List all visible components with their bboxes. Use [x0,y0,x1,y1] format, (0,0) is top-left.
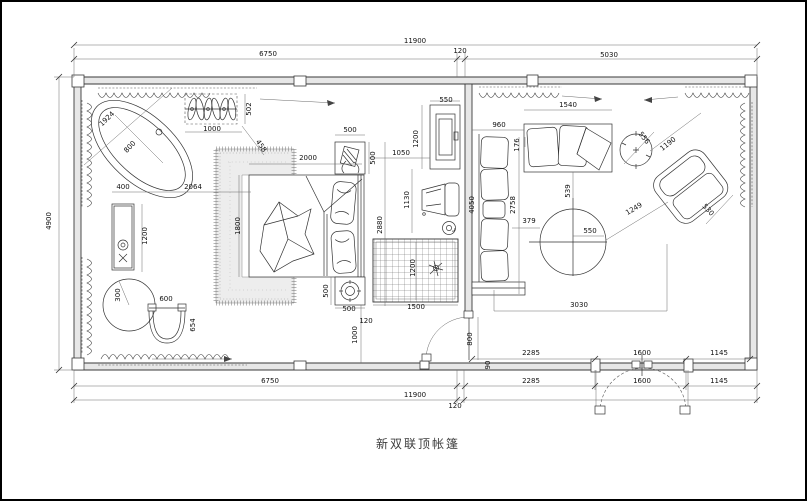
dim-label: 1145 [710,349,728,357]
drawing-title: 新双联顶帐篷 [376,436,460,451]
dim-label: 1050 [392,149,410,157]
nightstand-top [335,142,365,174]
dim-label: 4900 [45,212,53,230]
dim-label: 1200 [409,259,417,277]
dim-label: 1600 [633,377,651,385]
dim-label: 1200 [412,130,420,148]
round-table [529,198,607,276]
dim-label: 6750 [259,50,277,58]
dim-label: 2000 [299,154,317,162]
walls [72,75,757,372]
door-jamb-right [684,359,693,372]
dim-label: 1130 [403,191,411,209]
pillow [331,230,357,274]
dim-label: 550 [583,227,596,235]
dim-label: 176 [513,138,521,152]
dim-label: 1145 [710,377,728,385]
dim-label: 300 [114,288,122,301]
dim-label: 500 [343,126,356,134]
dimension-labels: 11900 6750 120 5030 4900 2285 1600 1145 … [45,37,728,410]
sofa-l-shaped [472,134,525,295]
tub-chair [148,304,186,343]
dim-label: 120 [448,402,461,410]
clothes-rack [185,94,237,124]
dim-label: 2285 [522,349,540,357]
dim-label: 400 [116,183,129,191]
sofa-top [524,124,612,172]
bathtub [74,83,210,216]
dim-label: 2758 [509,196,517,214]
round-side-table-left [103,279,155,331]
dim-label: 550 [439,96,452,104]
dim-label: 11900 [404,391,426,399]
dim-label: 120 [453,47,466,55]
dim-label: 90 [484,361,492,370]
armchair [649,145,733,228]
tv-cabinet [430,105,460,169]
dim-label: 502 [245,102,253,115]
dim-label: 2285 [522,377,540,385]
dim-label: 120 [359,317,372,325]
dim-label: 1000 [203,125,221,133]
dim-label: 3030 [570,301,588,309]
dim-label: 1500 [407,303,425,311]
dim-label: 1249 [624,201,643,217]
dim-label: 600 [159,295,172,303]
dim-label: 11900 [404,37,426,45]
dim-label: 1600 [633,349,651,357]
dim-label: 6750 [261,377,279,385]
dim-label: 500 [369,151,377,164]
dim-label: 539 [564,184,572,197]
floor-plan-sheet: 11900 6750 120 5030 4900 2285 1600 1145 … [0,0,807,501]
door-jamb-left [591,359,600,372]
dim-label: 1190 [659,135,678,152]
dim-label: 1800 [234,217,242,235]
dim-label: 654 [189,318,197,332]
lounge-chair [422,183,459,216]
dim-label: 379 [522,217,535,225]
dim-label: 800 [466,332,474,345]
nightstand-bottom [335,277,365,305]
dim-label: 5030 [600,51,618,59]
dim-label: 960 [492,121,505,129]
dim-label: 2880 [376,216,384,234]
dim-label: 2064 [184,183,202,191]
dim-label: 4050 [468,196,476,214]
outlet-symbol [443,222,456,235]
dim-label: 1200 [141,227,149,245]
dim-label: 1000 [351,326,359,344]
vanity-table [112,204,134,270]
floor-plan-drawing: 11900 6750 120 5030 4900 2285 1600 1145 … [2,2,807,501]
bed [249,175,364,277]
dim-label: 500 [342,305,355,313]
dim-label: 1540 [559,101,577,109]
dim-label: 500 [322,284,330,297]
curtain-trim [82,87,752,365]
